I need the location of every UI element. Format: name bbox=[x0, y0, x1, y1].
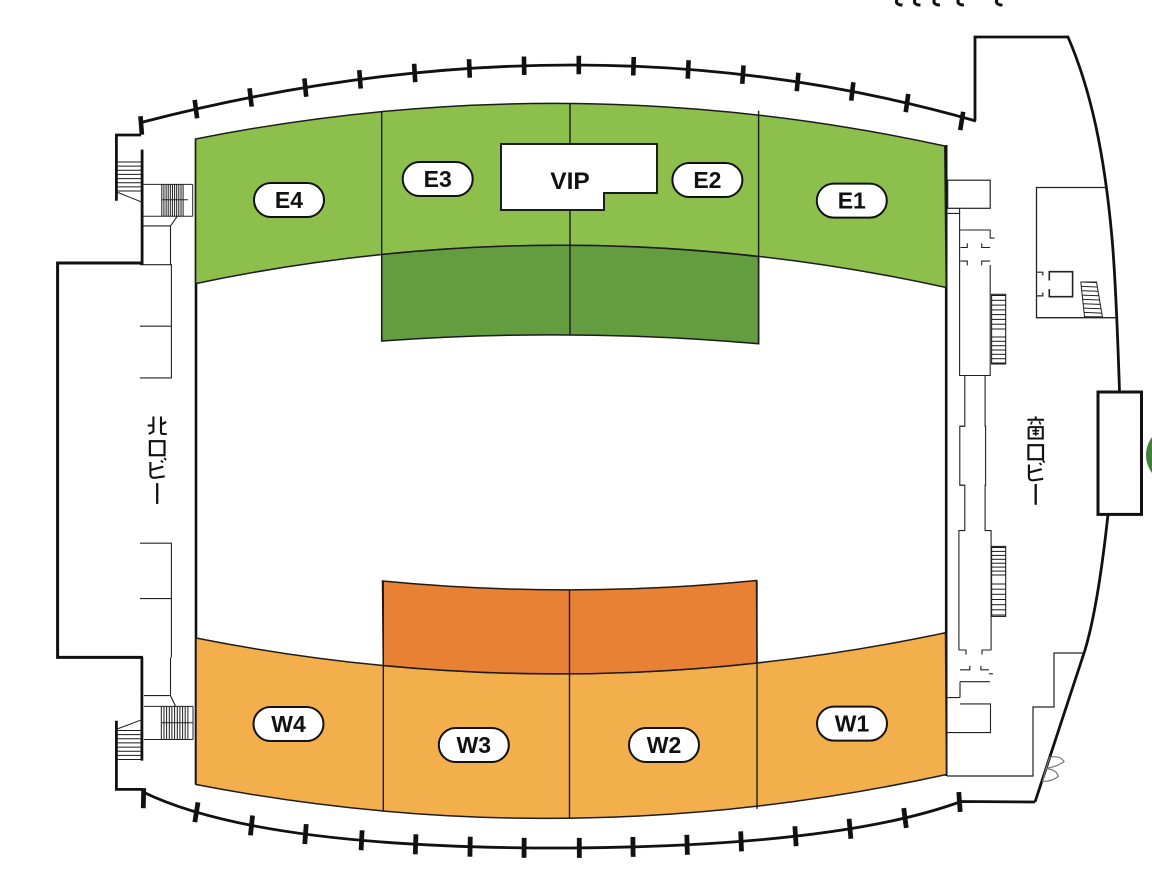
svg-text:W2: W2 bbox=[647, 732, 682, 758]
svg-text:W1: W1 bbox=[835, 711, 870, 737]
svg-text:W3: W3 bbox=[457, 732, 492, 758]
svg-text:E3: E3 bbox=[424, 166, 452, 192]
svg-text:W4: W4 bbox=[271, 711, 306, 737]
svg-text:E2: E2 bbox=[693, 167, 721, 193]
svg-text:VIP: VIP bbox=[550, 168, 590, 195]
svg-text:E4: E4 bbox=[275, 187, 303, 213]
svg-text:E1: E1 bbox=[838, 188, 866, 214]
